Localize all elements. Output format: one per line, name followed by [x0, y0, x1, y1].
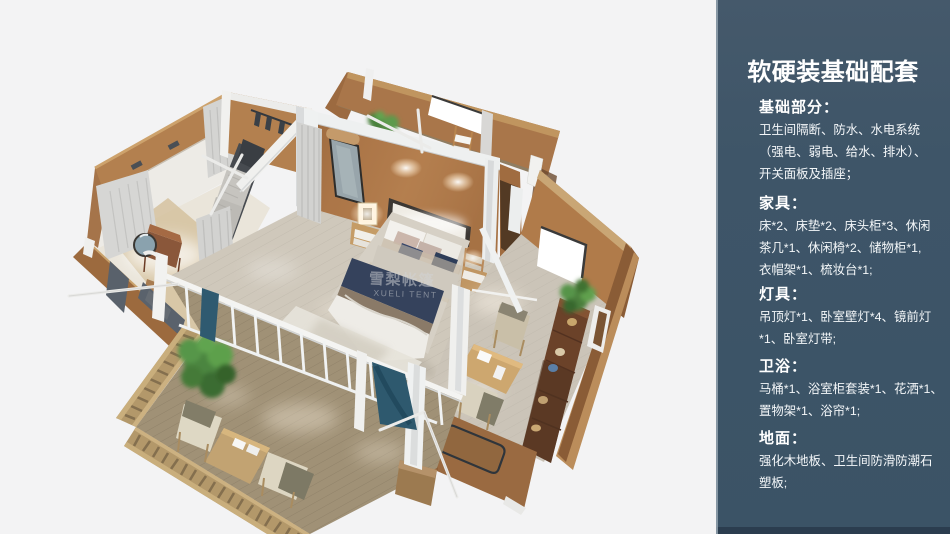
svg-text:雪梨帐篷: 雪梨帐篷	[369, 270, 436, 290]
